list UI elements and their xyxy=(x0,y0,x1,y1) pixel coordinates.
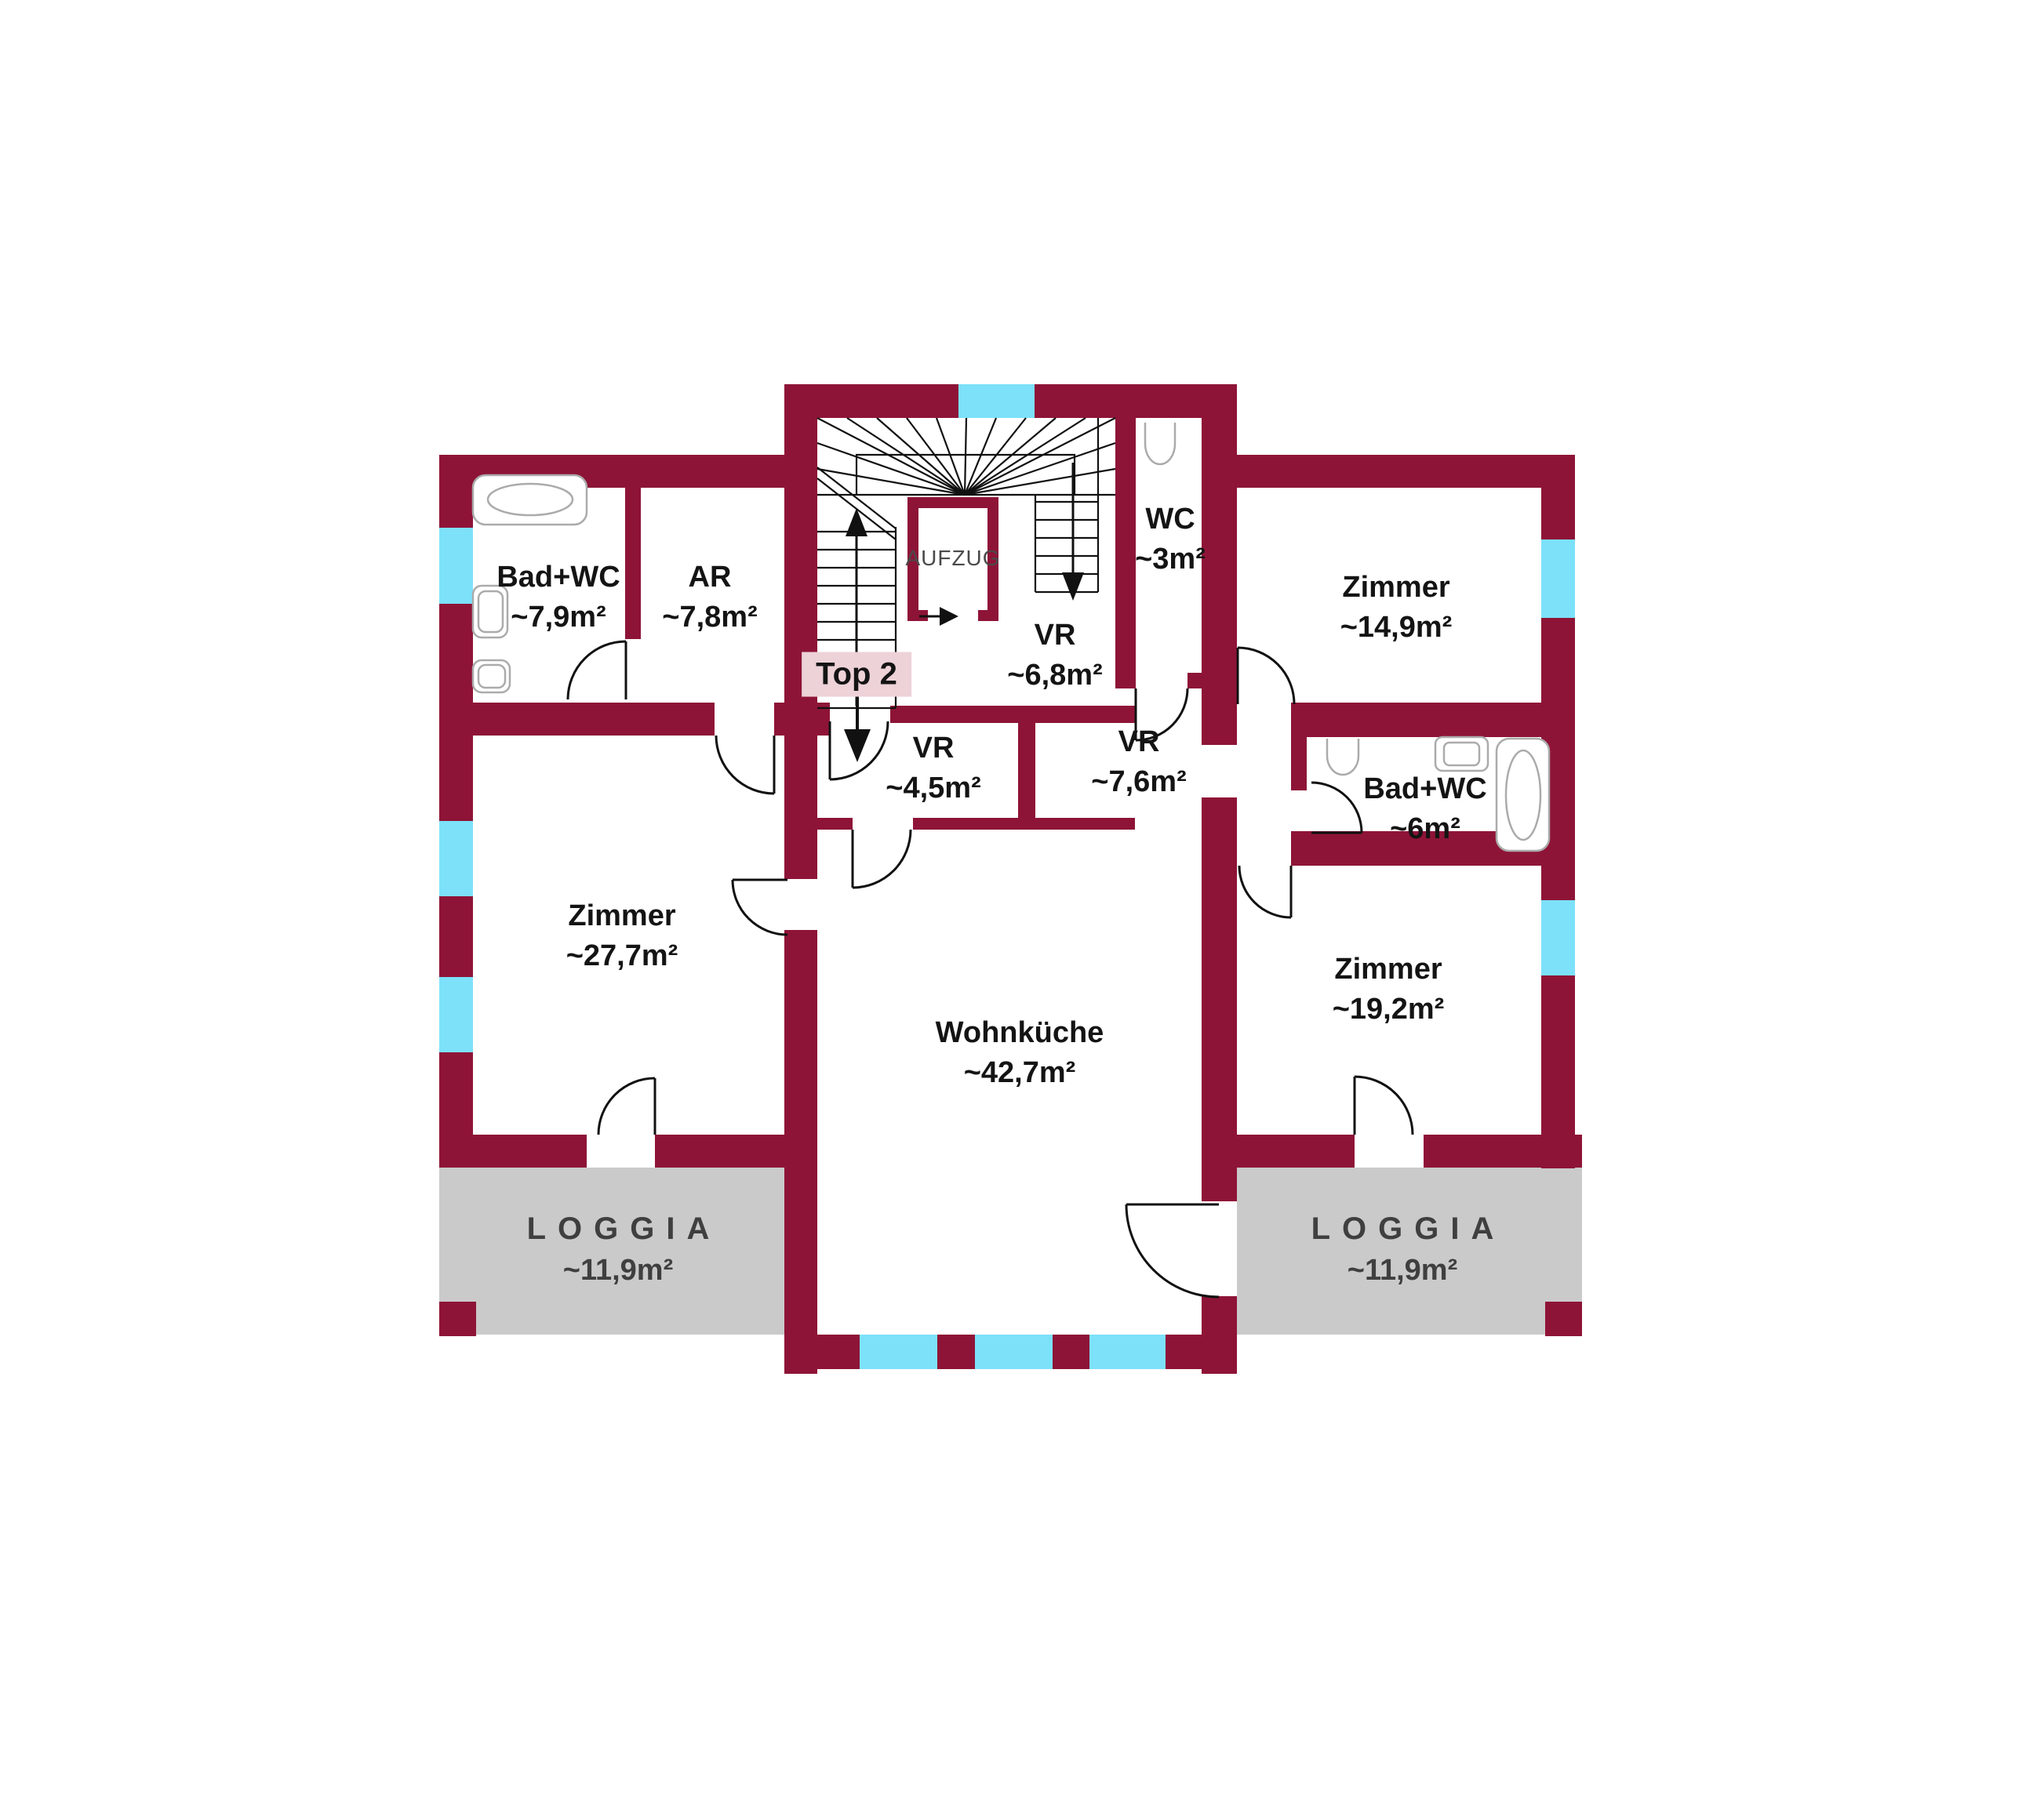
room-area: ~11,9m² xyxy=(515,1250,722,1290)
room-label-vr-45: VR ~4,5m² xyxy=(886,728,980,808)
room-name: Bad+WC xyxy=(1363,769,1486,809)
window-stairwell xyxy=(958,384,1035,418)
room-label-ar: AR ~7,8m² xyxy=(662,558,757,638)
wall-segment xyxy=(784,1335,860,1369)
elevator-shaft-wall xyxy=(907,497,998,508)
toilet-icon-badwc6 xyxy=(1327,739,1358,775)
wall-segment xyxy=(1202,384,1237,745)
door-arc-badwc-left xyxy=(568,641,626,699)
wall-segment xyxy=(1115,417,1136,673)
wall-segment xyxy=(1291,737,1307,790)
door-arc-zimmer149 xyxy=(1238,648,1294,704)
door-arc-wohnkueche-loggia xyxy=(1126,1204,1219,1297)
wall-segment xyxy=(1291,703,1542,737)
room-label-zimmer-149: Zimmer ~14,9m² xyxy=(1340,568,1453,648)
wall-segment xyxy=(1424,1135,1582,1168)
wall-segment xyxy=(890,706,1136,723)
room-label-badwc-left: Bad+WC ~7,9m² xyxy=(496,558,620,638)
room-label-wc: WC ~3m² xyxy=(1135,499,1206,579)
door-arc-ar xyxy=(716,736,774,794)
room-area: ~4,5m² xyxy=(886,768,980,808)
room-label-wohnkueche: Wohnküche ~42,7m² xyxy=(936,1013,1104,1093)
wall-segment xyxy=(1187,673,1202,688)
room-name: VR xyxy=(886,728,980,768)
room-name: LOGGIA xyxy=(515,1208,722,1251)
room-name: Wohnküche xyxy=(936,1013,1104,1053)
wall-segment xyxy=(1018,721,1035,818)
wall-segment xyxy=(655,1135,791,1168)
wall-segment xyxy=(784,418,817,879)
wall-segment xyxy=(937,1335,975,1369)
wall-segment xyxy=(817,818,853,830)
window-wohnkueche-2 xyxy=(975,1335,1053,1369)
door-arc-zimmer192 xyxy=(1239,866,1291,917)
room-area: ~7,9m² xyxy=(496,598,620,638)
window-zimmer-149 xyxy=(1541,539,1575,618)
bidet-icon-left xyxy=(473,660,510,692)
wall-segment xyxy=(1202,1296,1237,1374)
wall-segment xyxy=(439,1302,476,1336)
room-area: ~14,9m² xyxy=(1340,608,1453,648)
elevator-shaft-wall xyxy=(978,610,998,621)
room-label-loggia-right: LOGGIA ~11,9m² xyxy=(1300,1208,1506,1291)
room-label-zimmer-277: Zimmer ~27,7m² xyxy=(566,896,678,976)
window-badwc-left xyxy=(439,528,473,604)
door-arc-badwc6 xyxy=(1311,783,1362,833)
room-name: AR xyxy=(662,558,757,598)
floor-plan: Bad+WC ~7,9m² AR ~7,8m² WC ~3m² Zimmer ~… xyxy=(0,0,2044,1809)
room-name: VR xyxy=(1091,722,1186,762)
sink-icon-wc xyxy=(1145,423,1175,464)
room-label-loggia-left: LOGGIA ~11,9m² xyxy=(515,1208,722,1291)
room-name: LOGGIA xyxy=(1300,1208,1506,1251)
wall-segment xyxy=(439,455,784,488)
unit-badge: Top 2 xyxy=(802,652,911,697)
window-zimmer-277-1 xyxy=(439,821,473,896)
room-area: ~42,7m² xyxy=(936,1053,1104,1093)
room-area: ~3m² xyxy=(1135,539,1206,579)
room-name: Zimmer xyxy=(566,896,678,936)
wall-segment xyxy=(774,703,830,736)
wall-segment xyxy=(1202,1135,1355,1168)
room-name: WC xyxy=(1135,499,1206,539)
room-name: VR xyxy=(1007,616,1102,656)
door-arc-zimmer277-loggia xyxy=(598,1078,655,1135)
wall-segment xyxy=(1115,673,1136,688)
wall-segment xyxy=(1237,455,1575,488)
door-arc-vr45-wohnkueche xyxy=(853,830,911,888)
sink-icon-badwc6 xyxy=(1435,737,1488,771)
door-arc-zimmer277-wohnkueche xyxy=(733,880,787,935)
room-area: ~27,7m² xyxy=(566,936,678,976)
wall-segment xyxy=(1053,1335,1089,1369)
room-label-zimmer-192: Zimmer ~19,2m² xyxy=(1333,950,1445,1030)
room-area: ~6,8m² xyxy=(1007,656,1102,696)
room-name: Bad+WC xyxy=(496,558,620,598)
room-name: Zimmer xyxy=(1333,950,1445,990)
window-wohnkueche-1 xyxy=(860,1335,937,1369)
room-area: ~7,8m² xyxy=(662,598,757,638)
window-wohnkueche-3 xyxy=(1089,1335,1166,1369)
unit-entrance-arrow xyxy=(844,696,871,762)
wall-segment xyxy=(625,488,641,639)
elevator-label: AUFZUG xyxy=(905,546,1000,571)
door-arc-entrance-top2 xyxy=(830,721,888,779)
room-label-vr-76: VR ~7,6m² xyxy=(1091,722,1186,802)
window-zimmer-192 xyxy=(1541,900,1575,975)
room-area: ~11,9m² xyxy=(1300,1250,1506,1290)
wall-segment xyxy=(1166,1335,1202,1369)
wall-segment xyxy=(439,1135,587,1168)
wall-segment xyxy=(439,703,715,736)
window-zimmer-277-2 xyxy=(439,977,473,1052)
room-area: ~6m² xyxy=(1363,809,1486,849)
door-arc-zimmer192-loggia xyxy=(1355,1077,1413,1135)
elevator-shaft-wall xyxy=(907,610,928,621)
room-label-badwc-6: Bad+WC ~6m² xyxy=(1363,769,1486,849)
room-area: ~7,6m² xyxy=(1091,762,1186,802)
room-label-vr-68: VR ~6,8m² xyxy=(1007,616,1102,696)
room-name: Zimmer xyxy=(1340,568,1453,608)
wall-segment xyxy=(1545,1302,1582,1336)
room-area: ~19,2m² xyxy=(1333,990,1445,1030)
wall-segment xyxy=(913,818,1135,830)
